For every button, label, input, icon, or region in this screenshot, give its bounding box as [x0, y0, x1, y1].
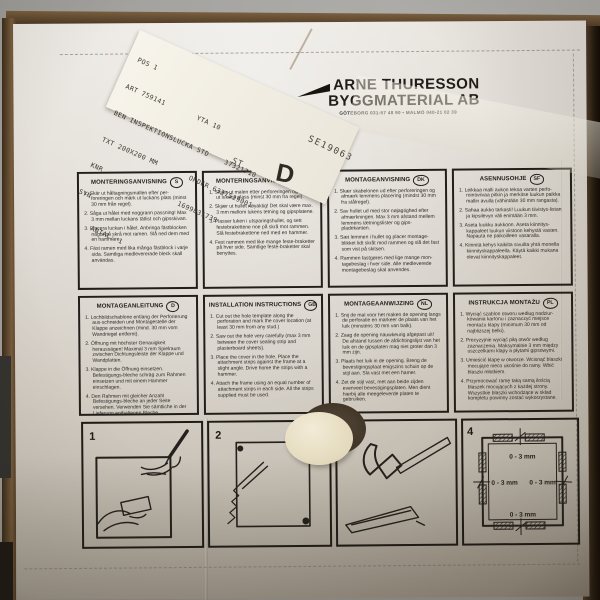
language-code-badge: PL: [543, 298, 558, 309]
panel-title: MONTAGEAANWIJZING: [344, 301, 414, 308]
instruction-step: 4. Rammen fastgøres med lige mange mon-t…: [335, 256, 441, 274]
hand-line: [104, 522, 138, 530]
clearance-label-bottom: 0 - 3 mm: [510, 511, 537, 518]
attachment-strip: [479, 453, 486, 472]
photo-of-instruction-box: ARNE THURESSON BYGGMATERIAL AB GÖTEBORG …: [0, 0, 600, 600]
attachment-strip: [525, 434, 544, 441]
template-outline: [96, 457, 171, 538]
perforation-line-bottom: [24, 564, 580, 570]
dimension-tick: [556, 481, 572, 482]
attachment-strip: [494, 522, 513, 529]
language-code-badge: GB: [304, 300, 317, 311]
panel-title: MONTAGEANVISNING: [345, 177, 410, 184]
template-block: [121, 497, 151, 516]
instruction-step: 2. Öffnung mit höchster Genauigkeit hera…: [85, 341, 191, 365]
strip-detail-line: [352, 511, 411, 525]
instruction-step: 2. Sahaa aukko tarkasti! Luukun tiivisty…: [459, 208, 565, 221]
panel-title: ASENNUSOHJE: [480, 176, 527, 182]
instruction-step: 3. Umieścić klapę w otworze. Wcisnąć bla…: [461, 358, 567, 376]
saw-blade-teeth: [228, 485, 240, 524]
attachment-strip: [493, 434, 512, 441]
instruction-step: 1. Skær skabelonen ud efter perforeringe…: [334, 188, 440, 206]
instruction-step: 1. Leikkaa malli aukon tekoa varten perf…: [459, 187, 565, 205]
printed-content: ARNE THURESSON BYGGMATERIAL AB GÖTEBORG …: [0, 0, 600, 600]
instruction-panel-polish: INSTRUKCJA MONTAŻUPL 1. Wyciąć szablon o…: [453, 292, 574, 413]
language-code-badge: D: [166, 301, 179, 312]
hand-line: [98, 511, 130, 524]
instruction-panel-danish: MONTAGEANVISNINGDK 1. Skær skabelonen ud…: [327, 169, 448, 288]
instruction-step: 2. Saw out the hole very carefully (max …: [210, 334, 316, 352]
hammer-handle: [396, 437, 450, 473]
language-code-badge: NL: [417, 299, 432, 310]
instruction-step: 2. Sav hullet ud med stor nøjagtighed ef…: [334, 209, 440, 233]
hand-line: [141, 463, 167, 469]
clearance-label-top: 0 - 3 mm: [509, 453, 536, 460]
cut-out-disc: [285, 412, 353, 465]
instruction-step: 4. Kiinnitä kehys kaikilta sivuilta yhtä…: [460, 243, 566, 261]
instruction-step: 3. Plaats het luik in de opening. Breng …: [336, 359, 442, 377]
company-logo-icon: [297, 84, 330, 97]
strip-tip: [417, 521, 425, 525]
language-code-badge: SF: [529, 174, 544, 185]
instruction-step: 4. Zet de stijl vast, met aan beide zijd…: [336, 380, 442, 404]
instruction-step: 3. Place the cover in the hole. Place th…: [210, 355, 316, 379]
instruction-step: 2. Zaag de opening nauwkeurig afgepast u…: [335, 333, 441, 357]
clearance-label-left: 0 - 3 mm: [491, 480, 518, 487]
instruction-step: 4. Attach the frame using an equal numbe…: [211, 381, 317, 399]
instruction-panel-dutch: MONTAGEAANWIJZINGNL 1. Snij de mal voor …: [328, 293, 449, 414]
pencil-mark: [142, 473, 166, 475]
instruction-panel-german: MONTAGEANLEITUNGD 1. Lochbildschablone e…: [78, 295, 199, 416]
figure-number: 4: [467, 426, 474, 438]
instruction-step: 4. Den Rahmen mit gleicher Anzahl Befest…: [86, 394, 192, 416]
clearance-label-right: 0 - 3 mm: [529, 479, 556, 486]
pencil-icon: [169, 431, 187, 457]
hammer-claw: [364, 444, 379, 475]
figure-step4-frame-clearance: 4 0 - 3 mm 0 - 3 mm: [461, 418, 580, 546]
instruction-step: 4. Przymocować ramę taką samą ilością bl…: [461, 379, 567, 403]
instruction-step: 1. Wyciąć szablon otworu według nadziur-…: [460, 311, 566, 335]
drill-hole-dot: [237, 446, 243, 452]
attachment-strip: [559, 484, 566, 503]
language-code-badge: DK: [413, 175, 429, 186]
instruction-step: 3. Sæt lemmen i hullet og placer montage…: [334, 235, 440, 253]
attachment-strip: [559, 452, 566, 471]
attachment-strip: [479, 485, 486, 504]
figure-number: 1: [89, 431, 95, 443]
instruction-step: 1. Lochbildschablone entlang der Perfori…: [85, 314, 191, 338]
panel-title: INSTRUKCJA MONTAŻU: [468, 300, 540, 307]
attachment-strip: [346, 507, 419, 533]
instruction-step: 3. Klappe in die Öffnung einsetzen. Befe…: [86, 367, 192, 391]
figure-step1-mark-template: 1: [81, 421, 204, 549]
instruction-step: 1. Snij de mal voor het maken de opening…: [335, 312, 441, 330]
drill-hole-dot: [302, 517, 309, 524]
instruction-step: 2. Precyzyjnie wyciąć piłą otwór według …: [460, 338, 566, 356]
instruction-panel-finnish: ASENNUSOHJESF 1. Leikkaa malli aukon tek…: [452, 168, 573, 287]
hand-line: [172, 457, 180, 467]
hand-line: [130, 514, 146, 517]
attachment-strip: [526, 522, 545, 529]
instruction-step: 3. Aseta luukku aukkoon. Aseta kiinnitys…: [459, 223, 565, 241]
panel-title: MONTAGEANLEITUNG: [97, 303, 164, 310]
figure-number: 2: [215, 430, 221, 442]
